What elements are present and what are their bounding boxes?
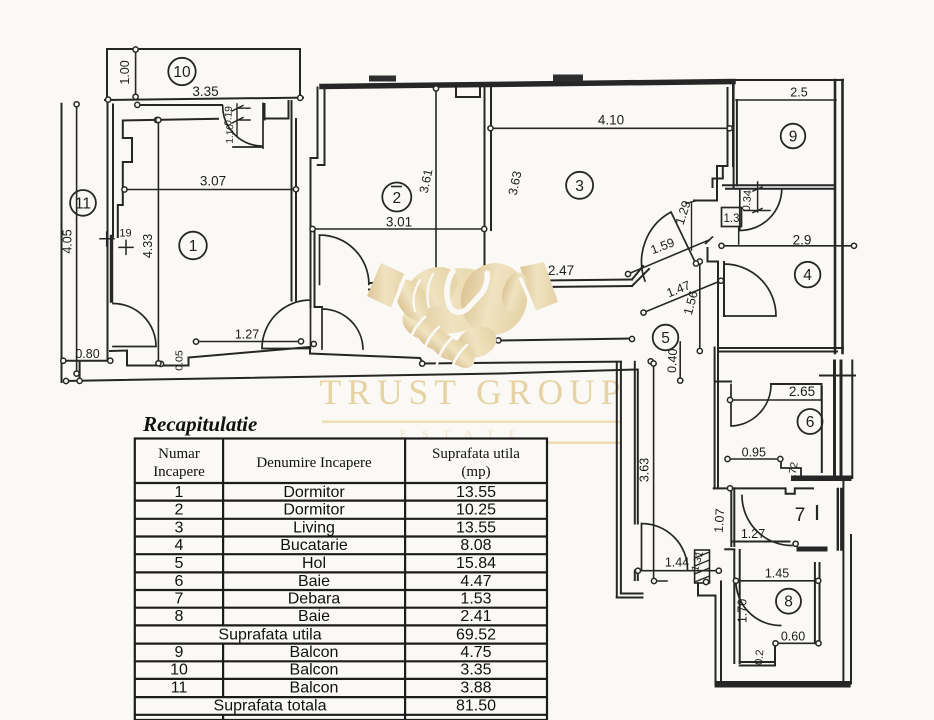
svg-text:Recapitulatie: Recapitulatie bbox=[142, 412, 257, 436]
svg-text:10: 10 bbox=[173, 64, 191, 81]
svg-text:9: 9 bbox=[789, 129, 798, 146]
svg-text:6: 6 bbox=[175, 573, 184, 590]
svg-text:Baie: Baie bbox=[298, 573, 330, 590]
svg-text:Hol: Hol bbox=[302, 555, 326, 572]
svg-text:2.5: 2.5 bbox=[790, 86, 807, 100]
svg-text:4.33: 4.33 bbox=[141, 234, 155, 258]
svg-text:1.00: 1.00 bbox=[118, 60, 132, 84]
svg-text:1.45: 1.45 bbox=[765, 567, 789, 581]
svg-text:3.61: 3.61 bbox=[417, 168, 436, 195]
svg-text:4.47: 4.47 bbox=[460, 573, 491, 590]
svg-text:Dormitor: Dormitor bbox=[283, 484, 345, 501]
svg-text:.19: .19 bbox=[116, 228, 131, 240]
svg-text:1.07: 1.07 bbox=[712, 508, 728, 533]
svg-text:0.34: 0.34 bbox=[741, 190, 755, 212]
svg-text:Numar: Numar bbox=[158, 446, 200, 462]
svg-text:8: 8 bbox=[784, 594, 793, 611]
svg-text:13.55: 13.55 bbox=[456, 520, 496, 537]
svg-text:13.55: 13.55 bbox=[456, 484, 496, 501]
svg-text:4.10: 4.10 bbox=[598, 113, 624, 128]
svg-text:1.31: 1.31 bbox=[689, 550, 706, 573]
svg-text:Balcon: Balcon bbox=[290, 662, 339, 679]
svg-text:1: 1 bbox=[189, 238, 198, 255]
svg-text:Dormitor: Dormitor bbox=[283, 502, 345, 519]
svg-text:10: 10 bbox=[170, 662, 188, 679]
svg-text:3: 3 bbox=[575, 178, 584, 195]
svg-text:.72: .72 bbox=[786, 461, 800, 478]
svg-text:1.70: 1.70 bbox=[736, 599, 750, 623]
svg-text:69.52: 69.52 bbox=[456, 627, 496, 644]
svg-text:2.47: 2.47 bbox=[548, 263, 574, 278]
svg-text:3.35: 3.35 bbox=[460, 662, 491, 679]
svg-text:8: 8 bbox=[175, 608, 184, 625]
svg-text:Suprafata utila: Suprafata utila bbox=[218, 627, 321, 644]
svg-text:0.2: 0.2 bbox=[753, 649, 766, 665]
svg-text:11: 11 bbox=[171, 680, 188, 697]
svg-text:0.80: 0.80 bbox=[75, 347, 99, 361]
svg-text:81.50: 81.50 bbox=[456, 698, 496, 715]
svg-text:Incapere: Incapere bbox=[153, 464, 205, 480]
svg-text:10.25: 10.25 bbox=[456, 502, 496, 519]
svg-text:1.44: 1.44 bbox=[665, 556, 689, 570]
svg-text:1.27: 1.27 bbox=[235, 328, 259, 342]
svg-text:3.63: 3.63 bbox=[506, 170, 525, 197]
svg-text:0.05: 0.05 bbox=[174, 350, 186, 371]
svg-text:Denumire Incapere: Denumire Incapere bbox=[256, 455, 372, 471]
svg-text:8.08: 8.08 bbox=[460, 537, 491, 554]
svg-text:(mp): (mp) bbox=[461, 464, 490, 480]
svg-text:1.29: 1.29 bbox=[673, 199, 694, 227]
svg-text:0.19: 0.19 bbox=[223, 106, 235, 126]
svg-text:11: 11 bbox=[75, 195, 91, 212]
svg-text:1.53: 1.53 bbox=[460, 591, 491, 608]
svg-text:4.05: 4.05 bbox=[61, 229, 75, 253]
svg-text:2.41: 2.41 bbox=[460, 608, 491, 625]
svg-text:Baie: Baie bbox=[298, 608, 330, 625]
svg-text:3.88: 3.88 bbox=[460, 680, 491, 697]
svg-text:5: 5 bbox=[175, 555, 184, 572]
svg-text:1.3: 1.3 bbox=[724, 213, 740, 225]
svg-text:3.01: 3.01 bbox=[386, 215, 412, 230]
svg-text:4: 4 bbox=[803, 267, 812, 284]
svg-text:2: 2 bbox=[392, 190, 401, 207]
svg-text:0.95: 0.95 bbox=[742, 446, 766, 460]
svg-text:6: 6 bbox=[806, 414, 815, 431]
svg-text:0.60: 0.60 bbox=[781, 630, 805, 644]
svg-text:3: 3 bbox=[175, 520, 184, 537]
svg-text:15.84: 15.84 bbox=[456, 555, 496, 572]
svg-text:1.59: 1.59 bbox=[649, 235, 677, 257]
svg-text:3.63: 3.63 bbox=[638, 458, 652, 482]
svg-text:2.65: 2.65 bbox=[789, 384, 815, 399]
svg-text:7: 7 bbox=[795, 505, 806, 526]
svg-text:Bucatarie: Bucatarie bbox=[280, 537, 348, 554]
svg-text:5: 5 bbox=[661, 330, 670, 347]
svg-text:9: 9 bbox=[175, 644, 184, 661]
svg-text:4: 4 bbox=[175, 537, 184, 554]
svg-text:3.35: 3.35 bbox=[192, 84, 218, 99]
svg-text:3.07: 3.07 bbox=[200, 174, 226, 189]
svg-text:Suprafata totala: Suprafata totala bbox=[214, 698, 327, 715]
svg-text:2.9: 2.9 bbox=[793, 233, 812, 248]
svg-text:1.27: 1.27 bbox=[741, 527, 765, 541]
svg-text:Balcon: Balcon bbox=[290, 680, 339, 697]
svg-text:TRUST GROUP: TRUST GROUP bbox=[320, 372, 627, 412]
svg-text:Balcon: Balcon bbox=[290, 644, 339, 661]
svg-text:2: 2 bbox=[175, 502, 184, 519]
svg-text:4.75: 4.75 bbox=[460, 644, 491, 661]
svg-text:Suprafata utila: Suprafata utila bbox=[432, 446, 520, 462]
svg-text:Debara: Debara bbox=[288, 591, 341, 608]
svg-text:1: 1 bbox=[175, 484, 184, 501]
svg-text:7: 7 bbox=[175, 591, 184, 608]
svg-text:Living: Living bbox=[293, 520, 335, 537]
svg-text:0.40: 0.40 bbox=[665, 348, 680, 373]
